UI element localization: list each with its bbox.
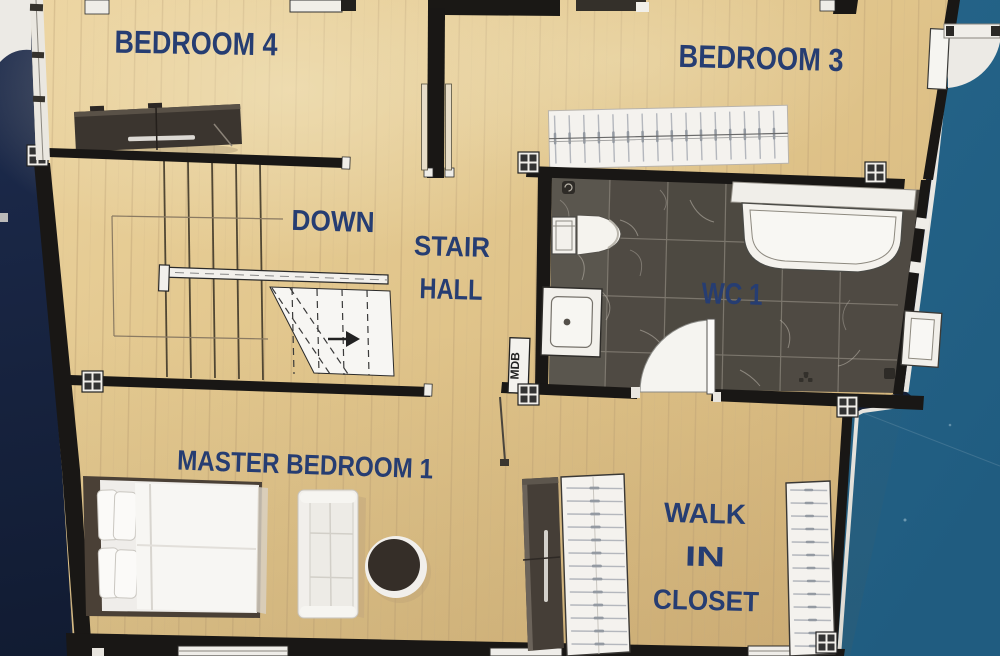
svg-text:IN: IN <box>685 540 726 572</box>
svg-text:BEDROOM 3: BEDROOM 3 <box>678 38 844 78</box>
svg-text:DOWN: DOWN <box>291 205 375 239</box>
svg-text:STAIR: STAIR <box>414 230 491 263</box>
svg-text:HALL: HALL <box>419 273 483 307</box>
svg-text:CLOSET: CLOSET <box>653 584 760 618</box>
svg-text:WALK: WALK <box>664 497 747 530</box>
svg-text:BEDROOM 4: BEDROOM 4 <box>114 24 278 63</box>
svg-text:WC 1: WC 1 <box>701 277 763 312</box>
svg-text:MDB: MDB <box>507 352 522 380</box>
